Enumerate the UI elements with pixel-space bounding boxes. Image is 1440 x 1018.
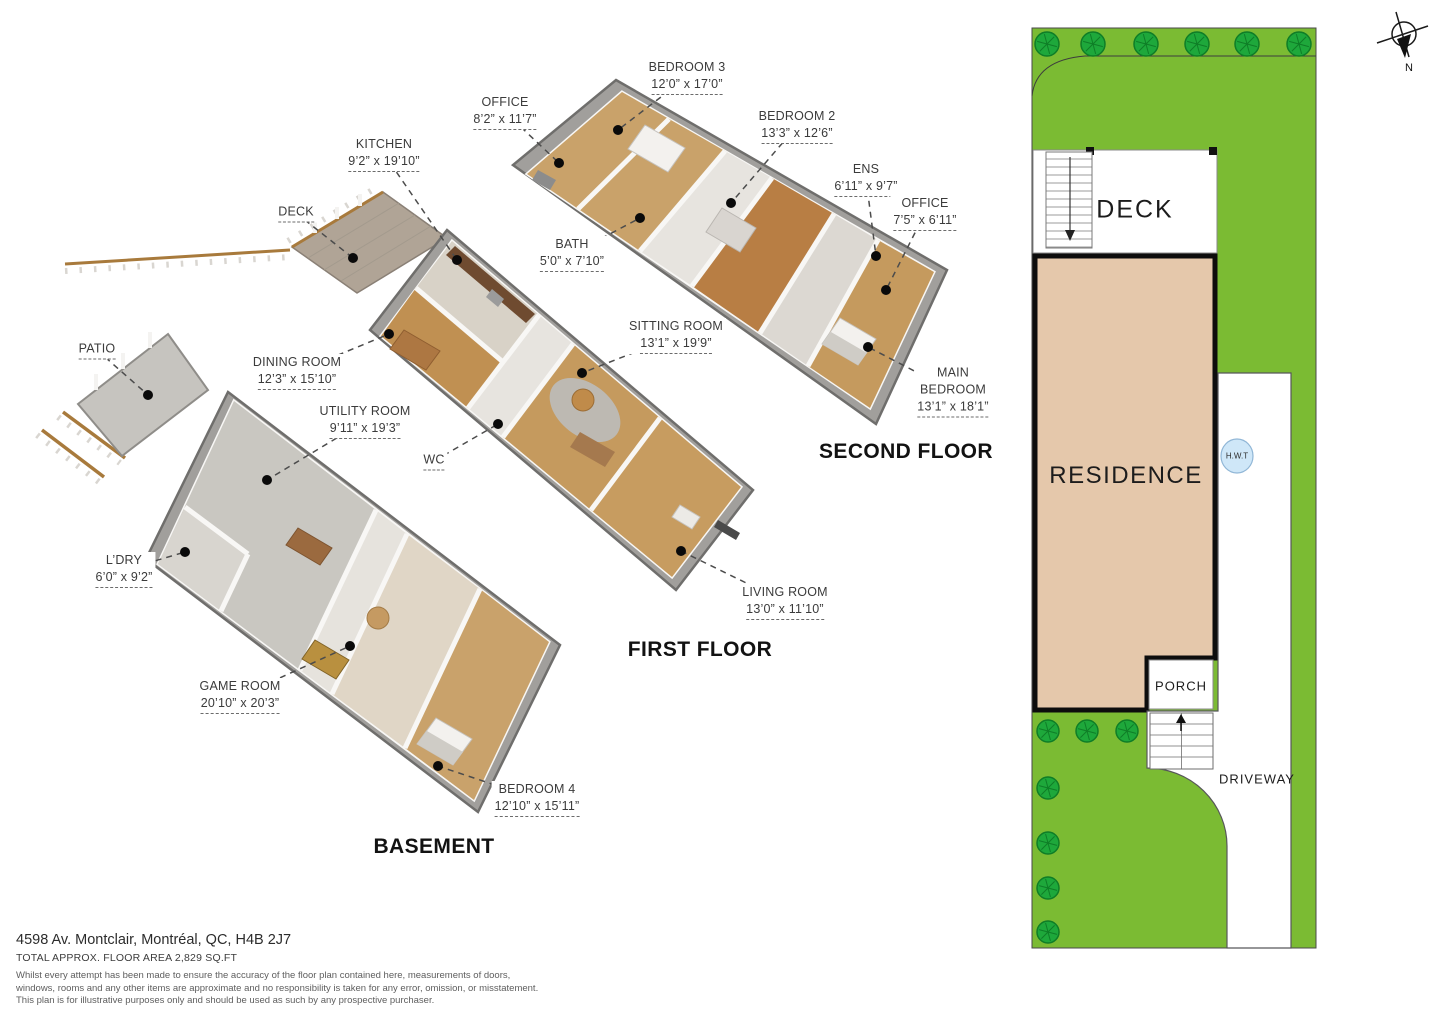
callout-second-0: BEDROOM 312’0” x 17’0”: [646, 59, 729, 95]
tree-icon: [1037, 921, 1059, 943]
room-name: ENS: [834, 161, 897, 178]
callout-second-2: BEDROOM 213’3” x 12’6”: [756, 108, 839, 144]
deck-post: [1209, 147, 1217, 155]
round-table: [367, 607, 389, 629]
room-dims: 9’11” x 19’3”: [330, 420, 400, 439]
tree-icon: [1185, 32, 1209, 56]
room-dims: 9’2” x 19’10”: [348, 153, 419, 172]
site-deck-label: DECK: [1096, 196, 1173, 225]
room-dims: 20’10” x 20’3”: [201, 695, 280, 714]
tree-icon: [1037, 877, 1059, 899]
callout-first-5: LIVING ROOM13’0” x 11’10”: [739, 584, 831, 620]
room-dims: 12’10” x 15’11”: [495, 798, 580, 817]
round-table: [572, 389, 594, 411]
room-name: L’DRY: [95, 552, 152, 569]
tree-icon: [1037, 777, 1059, 799]
porch-stairs: [1150, 713, 1213, 769]
callout-second-5: BATH5’0” x 7’10”: [537, 236, 607, 272]
site-residence-label: RESIDENCE: [1049, 462, 1203, 490]
room-dims: 6’0” x 9’2”: [95, 569, 152, 588]
callout-first-4: WC: [420, 452, 447, 471]
room-dot: [345, 641, 355, 651]
room-dot: [384, 329, 394, 339]
tree-icon: [1287, 32, 1311, 56]
room-dot: [613, 125, 623, 135]
tree-icon: [1081, 32, 1105, 56]
site-porch-label: PORCH: [1155, 679, 1207, 694]
disclaimer: Whilst every attempt has been made to en…: [16, 970, 538, 1008]
tree-icon: [1134, 32, 1158, 56]
callout-second-4: OFFICE7’5” x 6’11”: [890, 195, 959, 231]
tree-icon: [1035, 32, 1059, 56]
room-dot: [676, 546, 686, 556]
room-dot: [493, 419, 503, 429]
room-name: OFFICE: [893, 195, 956, 212]
room-dims: 13’3” x 12’6”: [761, 125, 832, 144]
callout-basement-0: PATIO: [76, 341, 119, 360]
room-name: OFFICE: [473, 94, 536, 111]
room-name: BEDROOM 3: [649, 59, 726, 76]
room-dims: 6’11” x 9’7”: [834, 178, 897, 197]
room-name: LIVING ROOM: [742, 584, 828, 601]
address-block: 4598 Av. Montclair, Montréal, QC, H4B 2J…: [16, 931, 538, 1008]
tree-icon: [1037, 720, 1059, 742]
callout-basement-3: GAME ROOM20’10” x 20’3”: [197, 678, 284, 714]
railing: [65, 250, 290, 264]
room-dot: [262, 475, 272, 485]
callout-first-3: DINING ROOM12’3” x 15’10”: [250, 354, 344, 390]
room-name: DINING ROOM: [253, 354, 341, 371]
room-dot: [577, 368, 587, 378]
room-dims: 13’1” x 19’9”: [640, 335, 711, 354]
room-name: KITCHEN: [348, 136, 419, 153]
room-dims: 12’0” x 17’0”: [651, 76, 722, 95]
deck-stairs: [1046, 152, 1092, 248]
hot-water-tank-label: H.W.T: [1226, 452, 1248, 461]
room-name: DECK: [278, 204, 314, 223]
floor-title-first: FIRST FLOOR: [628, 638, 772, 662]
address-line: 4598 Av. Montclair, Montréal, QC, H4B 2J…: [16, 931, 538, 950]
room-name: UTILITY ROOM: [319, 403, 410, 420]
room-dot: [180, 547, 190, 557]
room-dot: [635, 213, 645, 223]
room-name: GAME ROOM: [200, 678, 281, 695]
room-name: BEDROOM 4: [495, 781, 580, 798]
room-dot: [433, 761, 443, 771]
callout-second-1: OFFICE8’2” x 11’7”: [470, 94, 539, 130]
room-name: BATH: [540, 236, 604, 253]
floor-title-second: SECOND FLOOR: [819, 440, 993, 464]
compass-north-label: N: [1405, 62, 1413, 74]
room-name: PATIO: [79, 341, 116, 360]
room-dims: 13’1” x 18’1”: [917, 399, 988, 418]
room-name: BEDROOM 2: [759, 108, 836, 125]
callout-first-0: KITCHEN9’2” x 19’10”: [345, 136, 422, 172]
room-dims: 13’0” x 11’10”: [746, 601, 824, 620]
room-dot: [871, 251, 881, 261]
callout-second-3: ENS6’11” x 9’7”: [831, 161, 900, 197]
room-dot: [554, 158, 564, 168]
scene-svg: [0, 0, 1440, 1018]
tree-icon: [1037, 832, 1059, 854]
room-dims: 12’3” x 15’10”: [258, 371, 337, 390]
room-dot: [863, 342, 873, 352]
room-dims: 5’0” x 7’10”: [540, 253, 604, 272]
room-name: WC: [423, 452, 444, 471]
room-dims: 7’5” x 6’11”: [893, 212, 956, 231]
room-dot: [143, 390, 153, 400]
callout-basement-4: BEDROOM 412’10” x 15’11”: [492, 781, 583, 817]
tree-icon: [1116, 720, 1138, 742]
compass-icon: [1377, 12, 1428, 58]
room-dot: [452, 255, 462, 265]
floorplan-page: BEDROOM 312’0” x 17’0”OFFICE8’2” x 11’7”…: [0, 0, 1440, 1018]
callout-first-2: SITTING ROOM13’1” x 19’9”: [626, 318, 726, 354]
floor-area-line: TOTAL APPROX. FLOOR AREA 2,829 SQ.FT: [16, 951, 538, 966]
room-dot: [881, 285, 891, 295]
site-driveway-label: DRIVEWAY: [1219, 772, 1295, 787]
callout-basement-1: UTILITY ROOM9’11” x 19’3”: [316, 403, 413, 439]
tree-icon: [1235, 32, 1259, 56]
callout-first-1: DECK: [275, 204, 317, 223]
callout-second-6: MAIN BEDROOM13’1” x 18’1”: [914, 365, 991, 418]
tree-icon: [1076, 720, 1098, 742]
room-name: MAIN BEDROOM: [917, 365, 988, 399]
room-name: SITTING ROOM: [629, 318, 723, 335]
room-dims: 8’2” x 11’7”: [473, 111, 536, 130]
room-dot: [726, 198, 736, 208]
room-dot: [348, 253, 358, 263]
callout-basement-2: L’DRY6’0” x 9’2”: [92, 552, 155, 588]
floor-title-basement: BASEMENT: [373, 835, 494, 859]
